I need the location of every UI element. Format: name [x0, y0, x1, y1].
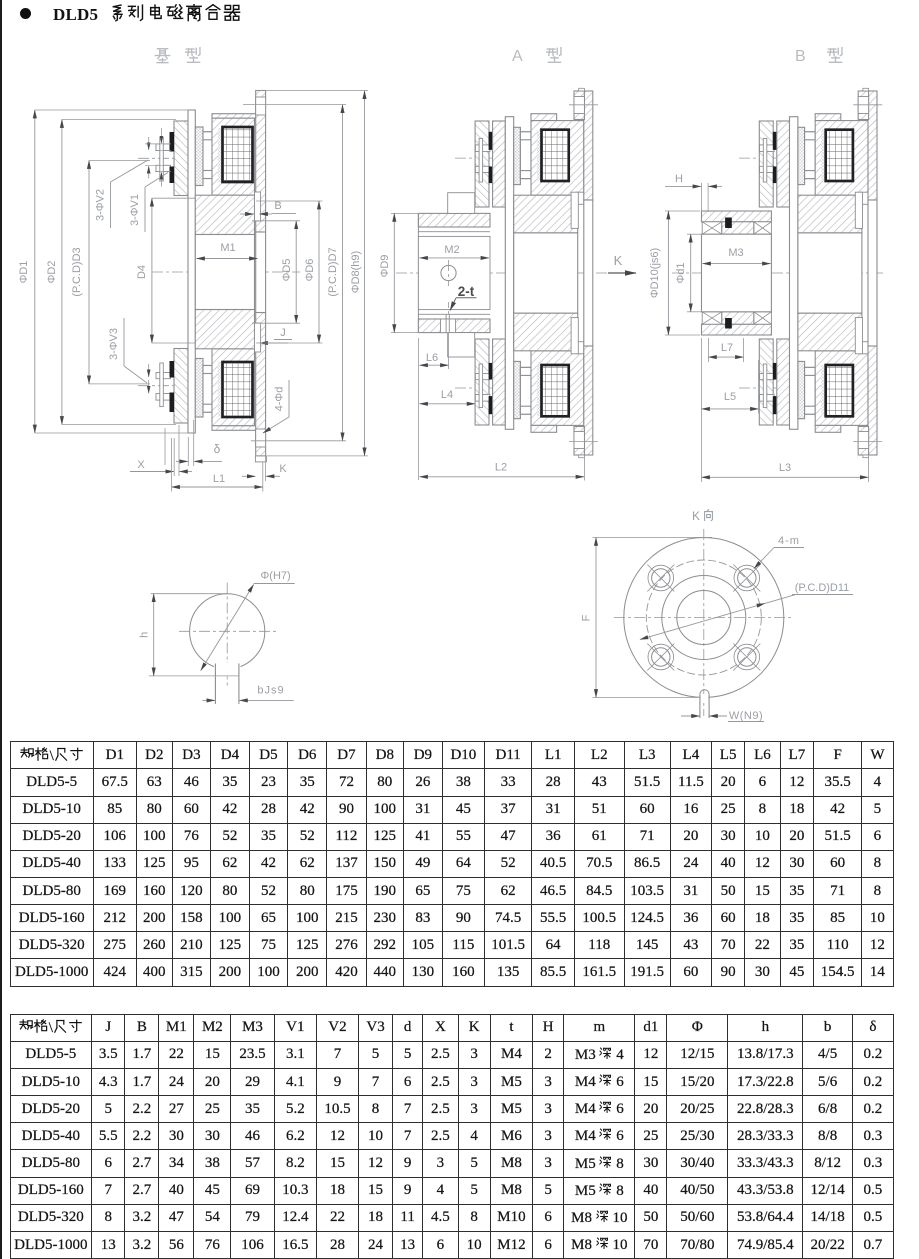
- svg-text:(P.C.D)D11: (P.C.D)D11: [795, 582, 850, 594]
- svg-text:K: K: [614, 253, 623, 268]
- svg-text:bJs9: bJs9: [257, 685, 284, 697]
- svg-text:H: H: [675, 173, 683, 185]
- svg-text:L5: L5: [724, 391, 736, 403]
- svg-text:M2: M2: [444, 244, 459, 256]
- svg-text:ΦD2: ΦD2: [46, 261, 58, 284]
- svg-text:3-ΦV1: 3-ΦV1: [129, 194, 141, 226]
- svg-text:4-Φd: 4-Φd: [274, 387, 286, 412]
- svg-text:3-ΦV3: 3-ΦV3: [108, 328, 120, 360]
- svg-text:L6: L6: [426, 352, 438, 364]
- svg-text:K: K: [692, 509, 700, 523]
- svg-text:δ: δ: [214, 442, 221, 456]
- svg-text:B: B: [274, 200, 281, 212]
- svg-text:Φ(H7): Φ(H7): [261, 570, 291, 582]
- svg-text:(P.C.D)D3: (P.C.D)D3: [71, 247, 83, 296]
- svg-text:L4: L4: [441, 389, 453, 401]
- svg-text:F: F: [581, 614, 593, 621]
- svg-text:(P.C.D)D7: (P.C.D)D7: [327, 247, 339, 296]
- svg-text:L7: L7: [721, 342, 733, 354]
- svg-text:ΦD9: ΦD9: [379, 255, 391, 278]
- svg-text:ΦD10(js6): ΦD10(js6): [649, 248, 661, 298]
- svg-text:Φd1: Φd1: [675, 262, 687, 283]
- svg-text:L2: L2: [495, 462, 507, 474]
- svg-text:A: A: [512, 48, 523, 65]
- svg-text:B: B: [795, 48, 806, 65]
- svg-text:h: h: [139, 632, 151, 638]
- svg-text:K: K: [279, 463, 287, 475]
- svg-text:2-t: 2-t: [458, 284, 475, 299]
- svg-text:X: X: [137, 459, 145, 471]
- svg-text:ΦD1: ΦD1: [18, 261, 30, 284]
- svg-text:J: J: [280, 327, 286, 339]
- svg-text:L3: L3: [779, 462, 791, 474]
- svg-text:M1: M1: [220, 242, 235, 254]
- svg-text:4-m: 4-m: [778, 535, 800, 547]
- svg-text:W(N9): W(N9): [729, 710, 763, 722]
- svg-text:3-ΦV2: 3-ΦV2: [95, 189, 107, 221]
- svg-text:ΦD8(h9): ΦD8(h9): [350, 251, 362, 293]
- svg-text:M3: M3: [728, 247, 743, 259]
- svg-text:ΦD5: ΦD5: [281, 259, 293, 282]
- svg-text:ΦD6: ΦD6: [304, 259, 316, 282]
- svg-text:L1: L1: [213, 473, 225, 485]
- svg-text:D4: D4: [136, 265, 148, 279]
